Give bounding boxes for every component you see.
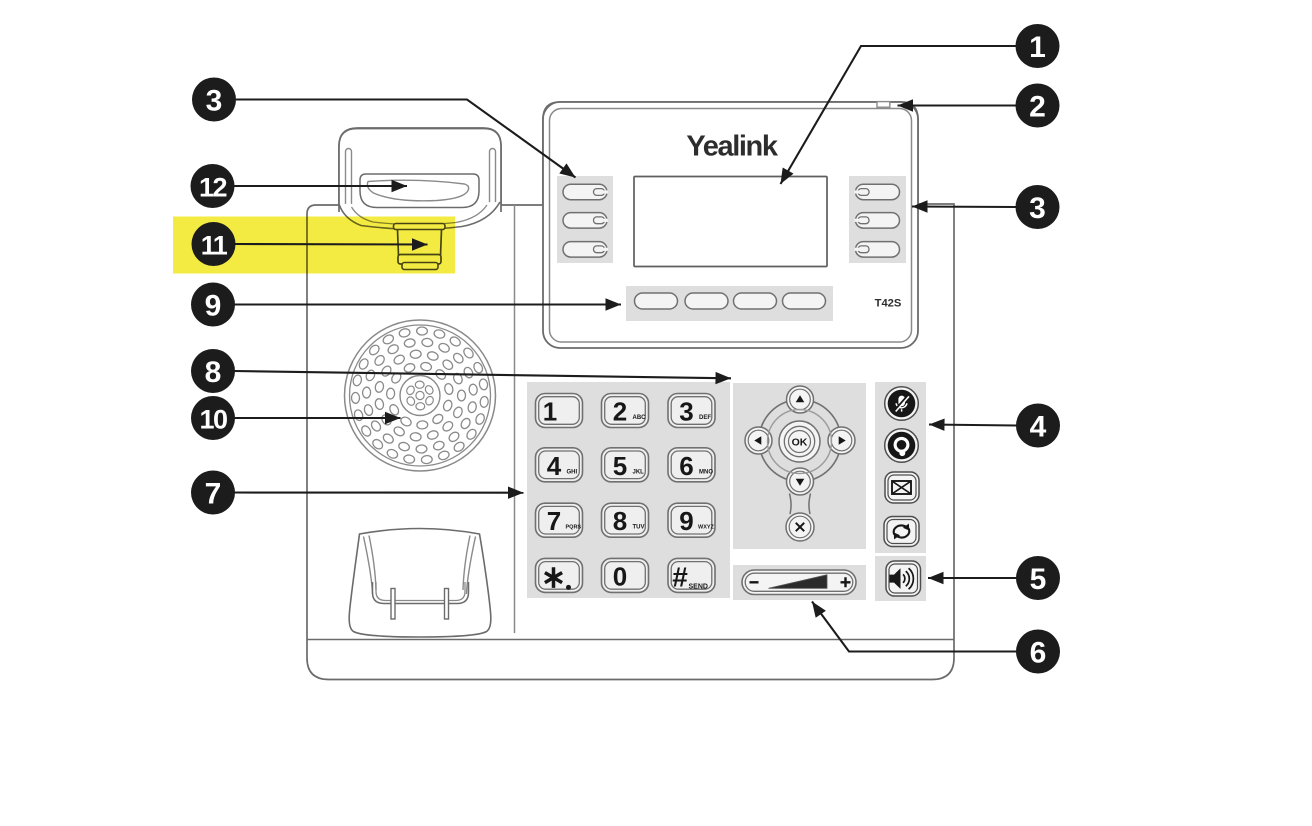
svg-text:OK: OK [792,436,808,448]
svg-text:ABC: ABC [633,415,647,421]
svg-text:3: 3 [1029,192,1046,225]
svg-text:11: 11 [201,231,228,261]
svg-text:3: 3 [679,397,693,427]
svg-text:4: 4 [547,451,562,481]
svg-text:#: # [672,561,688,592]
svg-text:6: 6 [679,451,693,481]
svg-text:WXYZ: WXYZ [698,525,715,531]
svg-text:7: 7 [205,478,222,511]
svg-text:Yealink: Yealink [686,131,778,163]
svg-text:12: 12 [199,173,227,203]
svg-text:GHI: GHI [567,469,578,475]
svg-text:7: 7 [547,506,561,536]
svg-text:1: 1 [1029,31,1046,64]
svg-text:MNO: MNO [699,469,713,475]
svg-text:6: 6 [1030,637,1047,670]
svg-text:8: 8 [613,506,627,536]
svg-text:4: 4 [1030,411,1047,444]
svg-text:2: 2 [1029,91,1046,124]
svg-text:9: 9 [679,506,693,536]
svg-text:0: 0 [613,561,627,591]
svg-text:5: 5 [613,451,627,481]
svg-text:1: 1 [543,397,557,427]
svg-text:3: 3 [206,85,223,118]
svg-text:JKL: JKL [633,469,645,475]
svg-text:5: 5 [1030,563,1047,596]
svg-text:10: 10 [199,405,227,435]
svg-text:9: 9 [205,290,222,323]
svg-text:TUV: TUV [633,525,645,531]
svg-text:DEF: DEF [699,415,711,421]
svg-text:T42S: T42S [875,298,902,310]
svg-text:PQRS: PQRS [566,525,582,531]
svg-text:8: 8 [205,356,222,389]
svg-text:2: 2 [613,397,627,427]
svg-text:SEND: SEND [689,583,708,590]
